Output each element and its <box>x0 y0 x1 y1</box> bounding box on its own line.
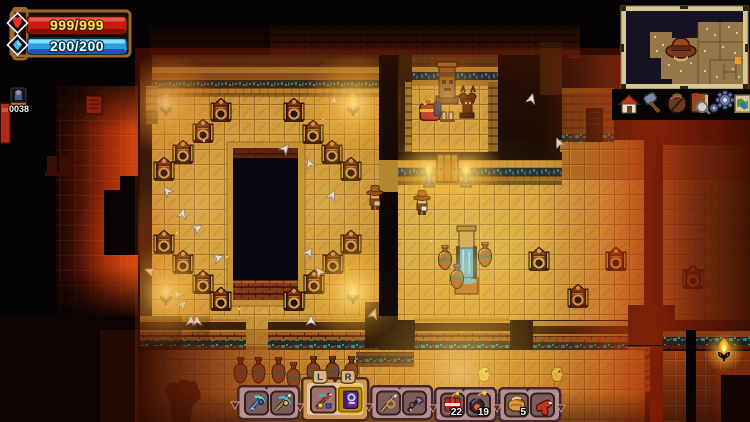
svg-text:999/999: 999/999 <box>50 17 104 33</box>
svg-text:R: R <box>345 372 352 383</box>
svg-text:22: 22 <box>451 407 463 418</box>
svg-text:200/200: 200/200 <box>50 38 104 54</box>
svg-text:19: 19 <box>478 407 490 418</box>
svg-text:5: 5 <box>520 407 526 418</box>
svg-text:0038: 0038 <box>9 104 29 114</box>
svg-text:L: L <box>317 372 323 383</box>
